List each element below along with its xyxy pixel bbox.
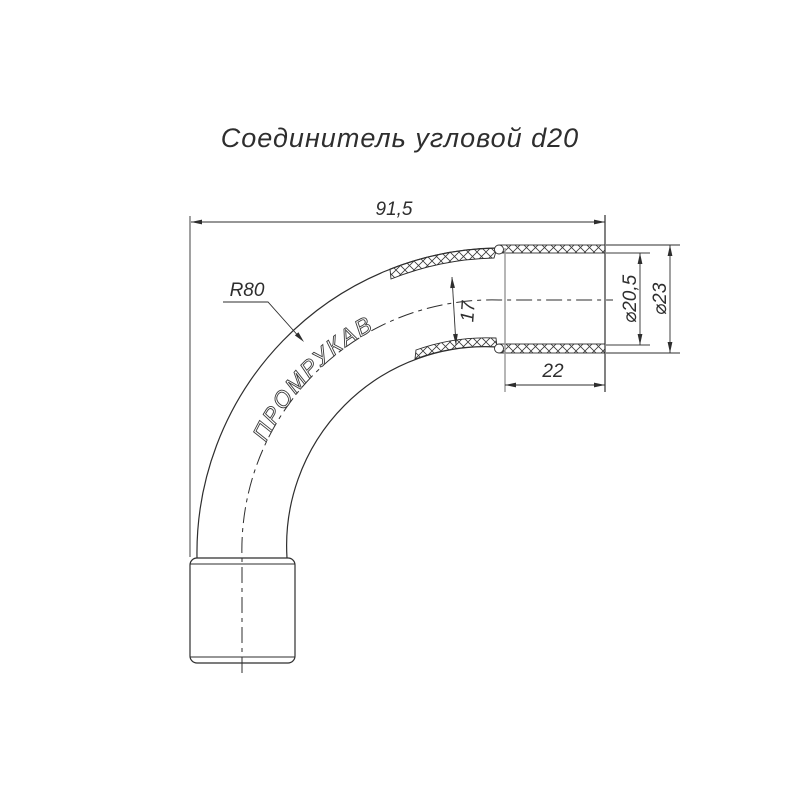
dimension-socket-length: 22 bbox=[505, 361, 605, 387]
outer-arc-hatch-band bbox=[390, 248, 497, 279]
arrowhead bbox=[191, 220, 202, 225]
dim-overall-width-label: 91,5 bbox=[376, 199, 413, 220]
dim-inner-diameter-label: ⌀20,5 bbox=[620, 274, 641, 323]
arrowhead bbox=[450, 277, 455, 288]
arrowhead bbox=[668, 245, 673, 256]
brand-text: ПРОМРУКАВ bbox=[247, 310, 377, 444]
elbow-connector-drawing: Соединитель угловой d20 ПРОМРУКАВ bbox=[0, 0, 800, 800]
arrowhead bbox=[594, 383, 605, 388]
dim-socket-length-label: 22 bbox=[541, 361, 564, 382]
radius-callout: R80 bbox=[223, 280, 306, 344]
right-socket-bottom-lip bbox=[495, 344, 504, 353]
radius-leader-line bbox=[223, 302, 301, 339]
radius-label: R80 bbox=[230, 280, 265, 301]
dim-outer-diameter-label: ⌀23 bbox=[650, 282, 671, 315]
dimension-inner-diameter: ⌀20,5 bbox=[606, 253, 650, 345]
dimension-tube-diameter: 17 bbox=[450, 277, 480, 345]
arrowhead bbox=[638, 334, 643, 345]
arrowhead bbox=[668, 342, 673, 353]
elbow-inner-arc bbox=[287, 347, 497, 558]
dim-tube-diameter-label: 17 bbox=[457, 299, 480, 323]
right-socket-top-lip bbox=[495, 245, 504, 254]
right-socket-top-hatch-band bbox=[500, 245, 605, 253]
page-title: Соединитель угловой d20 bbox=[221, 123, 579, 153]
brand-text-path: ПРОМРУКАВ bbox=[247, 310, 377, 444]
arrowhead bbox=[594, 220, 605, 225]
right-socket-bottom-hatch-band bbox=[500, 344, 605, 353]
dimension-outer-diameter: ⌀23 bbox=[606, 245, 680, 353]
arrowhead bbox=[505, 383, 516, 388]
technical-drawing-page: Соединитель угловой d20 ПРОМРУКАВ bbox=[0, 0, 800, 800]
arrowhead bbox=[638, 253, 643, 264]
